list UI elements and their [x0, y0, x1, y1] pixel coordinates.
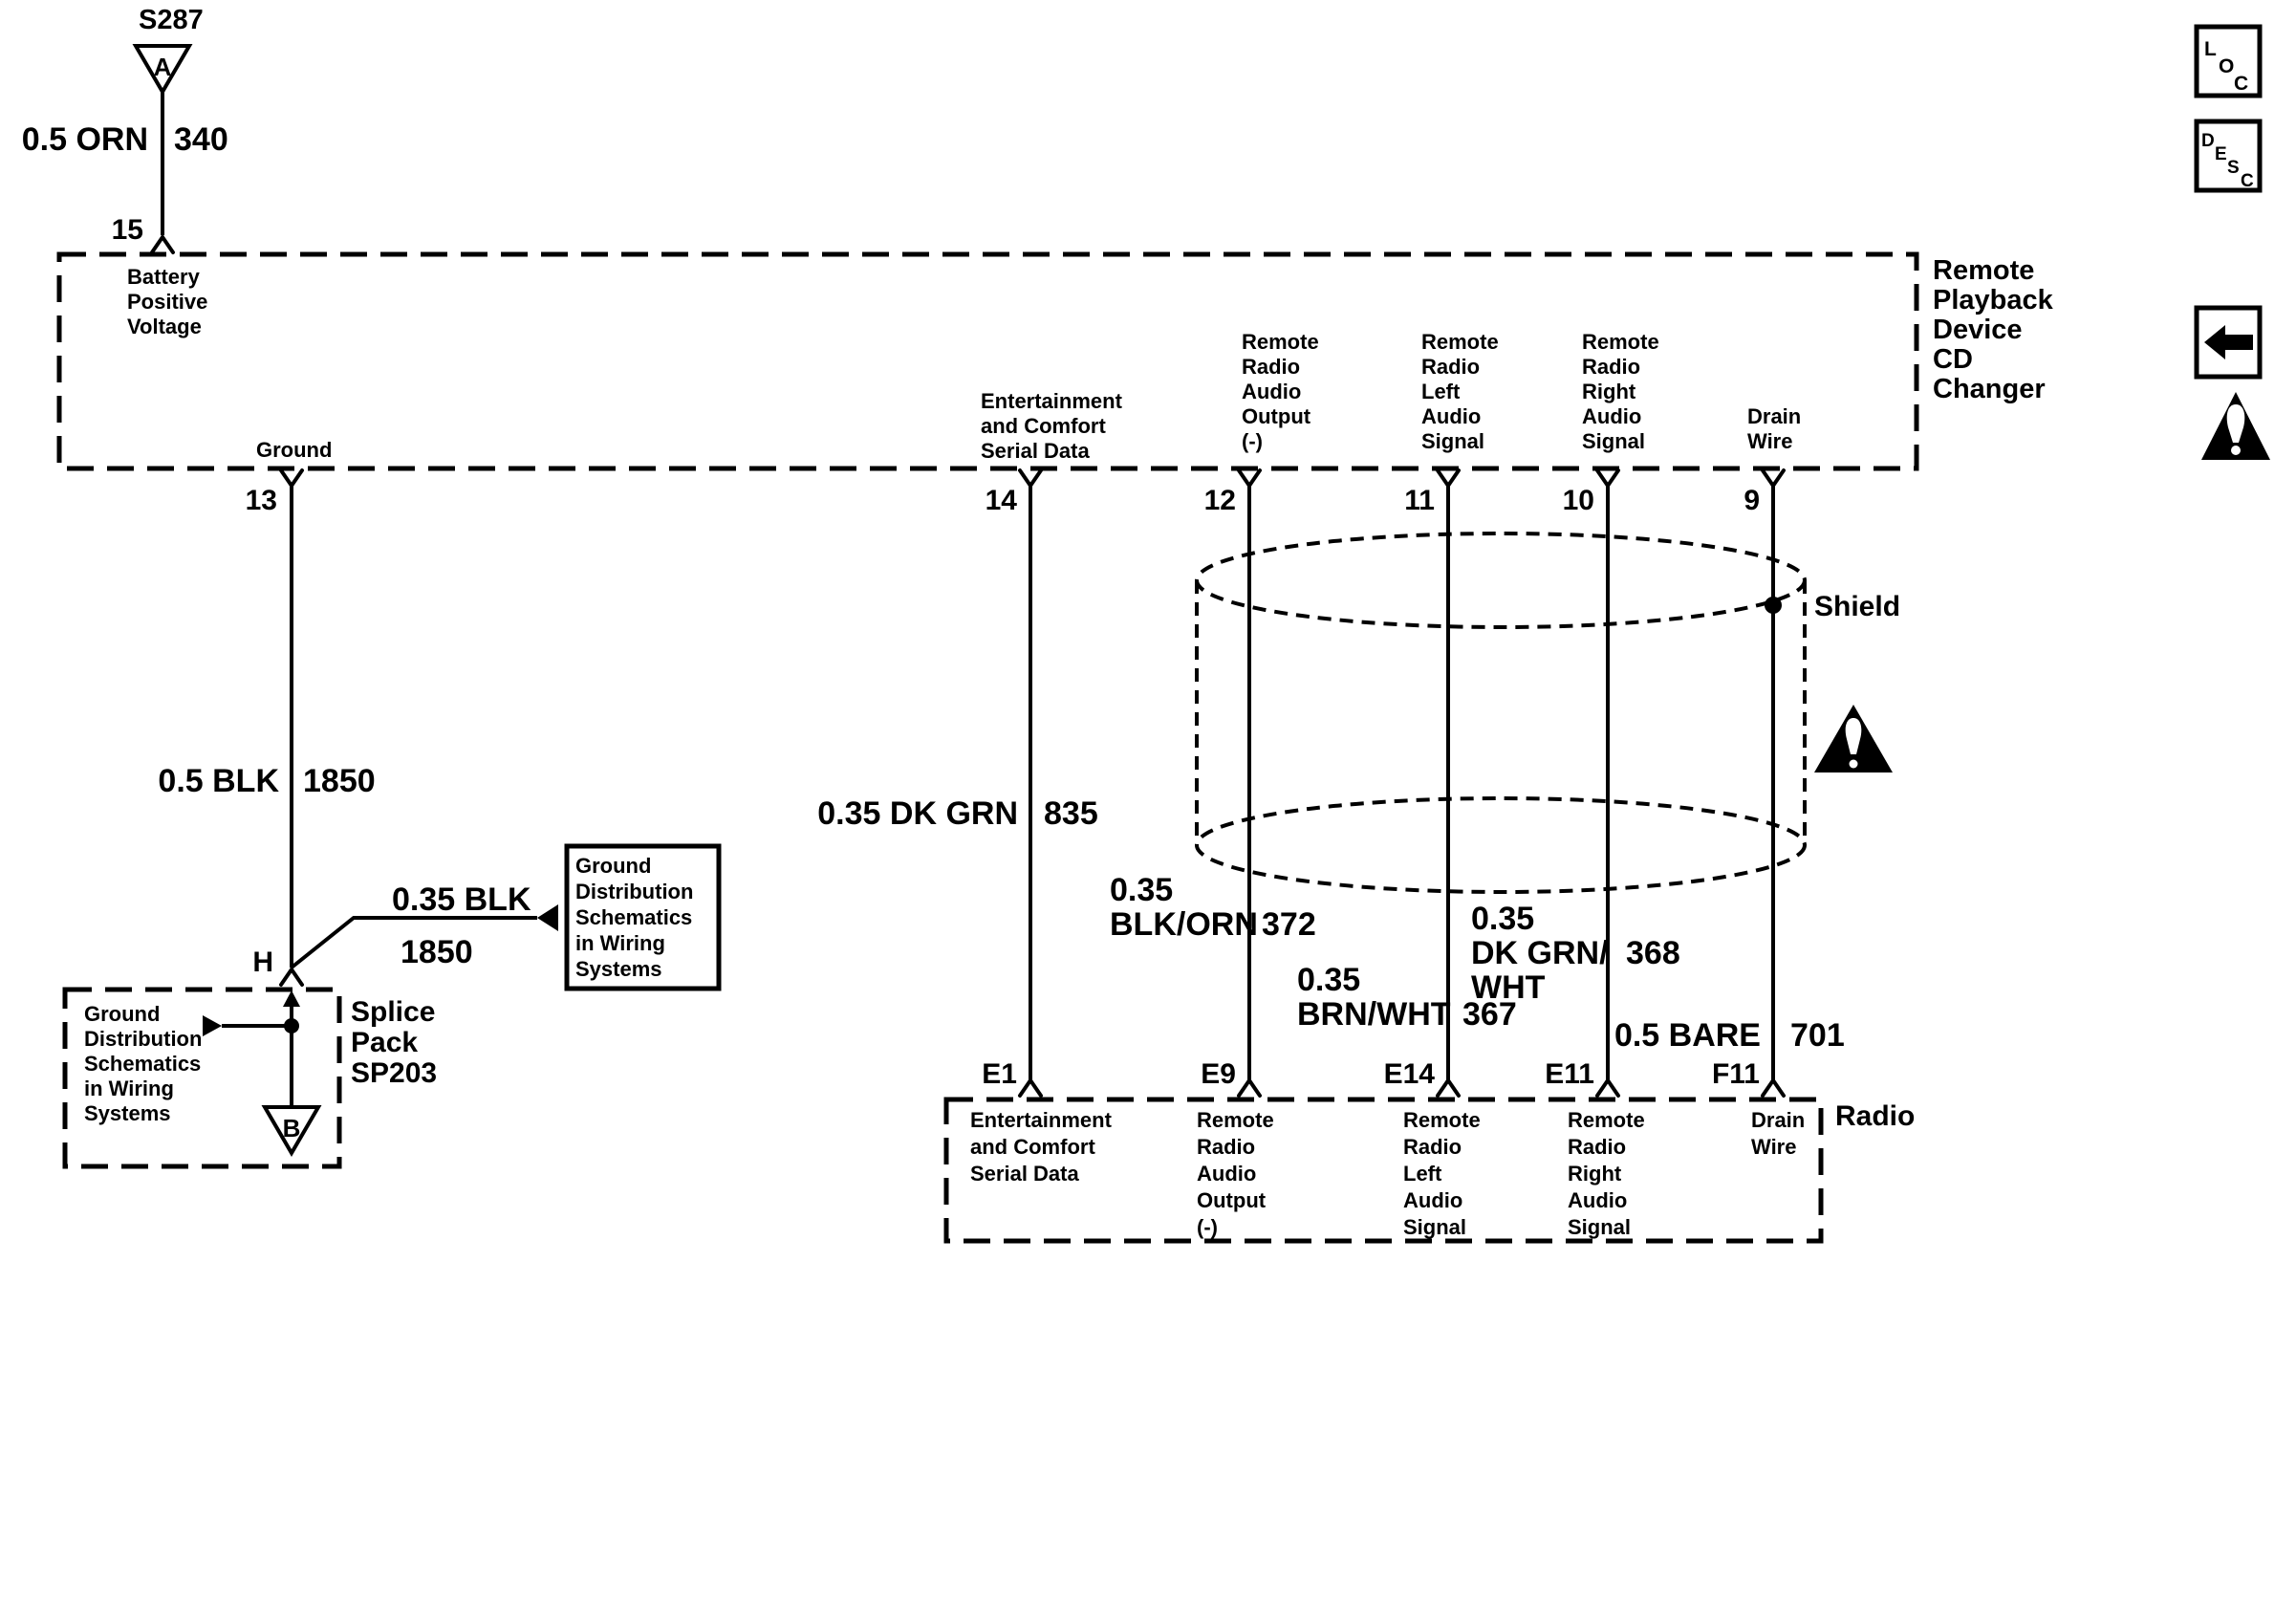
back-button[interactable]: [2197, 308, 2260, 377]
radio-right-audio-line1: Remote: [1568, 1108, 1645, 1132]
pin14-connector-icon: [1020, 470, 1041, 486]
loc-letter-l: L: [2204, 38, 2217, 60]
branch-wire-circuit: 1850: [401, 934, 473, 970]
radio-left-audio-line3: Left: [1403, 1162, 1442, 1186]
radio-audio-out-line3: Audio: [1197, 1162, 1256, 1186]
ground-wire-color: 0.5 BLK: [158, 763, 279, 799]
pin10-number: 10: [1563, 485, 1594, 516]
splice-pack-area: H Splice Pack SP203 Ground Distribution …: [84, 946, 437, 1125]
battery-wire-color-label: 0.5 ORN: [22, 121, 148, 158]
cd-serial-line3: Serial Data: [981, 439, 1090, 463]
serial-wire-color: 0.35 DK GRN: [817, 795, 1018, 832]
right-audio-wire-color-line1: 0.35: [1471, 901, 1534, 937]
radio-serial-line2: and Comfort: [970, 1135, 1095, 1159]
pin9-connector-icon: [1763, 470, 1784, 486]
desc-letter-e: E: [2215, 144, 2227, 164]
right-audio-wire-circuit: 368: [1626, 935, 1680, 971]
branch-to-schematic-arrow-icon: [537, 904, 558, 931]
cd-left-audio-line3: Left: [1421, 380, 1461, 403]
cd-name-line4: CD: [1933, 344, 1973, 375]
pinE14-connector-icon: [1438, 1080, 1459, 1096]
gnd-dist-line3: Schematics: [575, 905, 692, 929]
drain-wire-color: 0.5 BARE: [1614, 1017, 1761, 1054]
pinE9-number: E9: [1201, 1058, 1236, 1090]
pinE9-connector-icon: [1239, 1080, 1260, 1096]
pin13-number: 13: [246, 485, 277, 516]
warning-exclamation-dot: [2231, 446, 2241, 455]
splice-box-line2: Distribution: [84, 1027, 202, 1051]
battery-positive-line1: Battery: [127, 265, 201, 289]
radio-audio-out-line4: Output: [1197, 1188, 1267, 1212]
radio-left-audio-line4: Audio: [1403, 1188, 1462, 1212]
pinH-connector-icon: [281, 969, 302, 985]
pin13-connector-icon: [281, 470, 302, 486]
audio-out-wire-circuit: 372: [1262, 906, 1316, 943]
wiring-diagram-page: A B S287 0.5 ORN 340 15 Battery Positive…: [0, 0, 2296, 1610]
radio-serial-line3: Serial Data: [970, 1162, 1079, 1186]
pin11-connector-icon: [1438, 470, 1459, 486]
cd-right-audio-line3: Right: [1582, 380, 1636, 403]
wiring-diagram-canvas: A B S287 0.5 ORN 340 15 Battery Positive…: [0, 0, 2296, 1610]
cd-name-line1: Remote: [1933, 255, 2034, 286]
radio-left-audio-line5: Signal: [1403, 1215, 1466, 1239]
gnd-dist-line5: Systems: [575, 957, 662, 981]
shield-bottom-ellipse: [1197, 798, 1805, 892]
caution-indicator[interactable]: [2201, 392, 2270, 460]
pinE14-number: E14: [1384, 1058, 1436, 1090]
cd-audio-out-line3: Audio: [1242, 380, 1301, 403]
gnd-dist-line4: in Wiring: [575, 931, 665, 955]
shield-cylinder: [1197, 533, 1805, 892]
radio-name: Radio: [1835, 1100, 1915, 1132]
cd-left-audio-line2: Radio: [1421, 355, 1480, 379]
corner-toolbar: L O C D E S C: [2197, 27, 2270, 460]
connector-a-letter: A: [154, 53, 172, 81]
cd-serial-line1: Entertainment: [981, 389, 1123, 413]
splice-pack-line3: SP203: [351, 1057, 437, 1089]
pinE11-connector-icon: [1597, 1080, 1618, 1096]
splice-box-line5: Systems: [84, 1101, 171, 1125]
cd-left-audio-line5: Signal: [1421, 429, 1484, 453]
cd-right-audio-line4: Audio: [1582, 404, 1641, 428]
pin11-number: 11: [1404, 485, 1435, 516]
shield-label: Shield: [1814, 591, 1900, 622]
right-audio-wire-color-line2: DK GRN/: [1471, 935, 1609, 971]
pin12-number: 12: [1204, 485, 1236, 516]
warning-exclamation-dot: [1850, 760, 1858, 769]
loc-letter-o: O: [2219, 55, 2234, 77]
ground-wire-circuit: 1850: [303, 763, 376, 799]
splice-male-terminal-icon: [283, 990, 300, 1007]
right-audio-wire-color-line3: WHT: [1471, 969, 1546, 1006]
cd-serial-line2: and Comfort: [981, 414, 1106, 438]
connector-b-letter: B: [283, 1114, 301, 1142]
cd-audio-out-line1: Remote: [1242, 330, 1319, 354]
cd-name-line5: Changer: [1933, 374, 2046, 404]
splice-box-line4: in Wiring: [84, 1077, 174, 1100]
gnd-dist-line2: Distribution: [575, 880, 693, 903]
cd-audio-out-line5: (-): [1242, 429, 1263, 453]
pinF11-number: F11: [1712, 1058, 1760, 1090]
splice-box-line3: Schematics: [84, 1052, 201, 1076]
radio-left-audio-line2: Radio: [1403, 1135, 1462, 1159]
pin15-connector-icon: [152, 237, 173, 252]
radio-right-audio-line3: Right: [1568, 1162, 1622, 1186]
radio-audio-out-line2: Radio: [1197, 1135, 1255, 1159]
left-audio-wire-color-line2: BRN/WHT: [1297, 996, 1451, 1033]
cd-name-line2: Playback: [1933, 285, 2054, 315]
desc-button[interactable]: D E S C: [2197, 121, 2260, 191]
pin14-number: 14: [986, 485, 1018, 516]
cd-left-audio-line1: Remote: [1421, 330, 1499, 354]
splice-pack-line1: Splice: [351, 996, 435, 1028]
radio-drain-line2: Wire: [1751, 1135, 1796, 1159]
radio-drain-line1: Drain: [1751, 1108, 1805, 1132]
cd-name-line3: Device: [1933, 315, 2023, 345]
pinE11-number: E11: [1545, 1058, 1594, 1090]
splice-junction-dot: [284, 1018, 299, 1033]
cd-right-audio-line2: Radio: [1582, 355, 1640, 379]
pinE1-number: E1: [982, 1058, 1017, 1090]
battery-positive-line3: Voltage: [127, 315, 202, 338]
battery-wire-circuit-label: 340: [174, 121, 228, 158]
pin15-number: 15: [112, 214, 143, 246]
splice-pack-line2: Pack: [351, 1027, 418, 1058]
desc-letter-d: D: [2201, 131, 2215, 151]
pinH-number: H: [252, 946, 273, 978]
cd-changer-labels: Battery Positive Voltage Ground Entertai…: [127, 265, 1801, 463]
desc-letter-s: S: [2227, 158, 2240, 178]
cd-changer-pin-numbers: 13 14 12 11 10 9: [246, 485, 1760, 516]
splice-schematic-arrow-icon: [203, 1015, 222, 1036]
radio-serial-line1: Entertainment: [970, 1108, 1113, 1132]
cd-audio-out-line4: Output: [1242, 404, 1311, 428]
cd-right-audio-line1: Remote: [1582, 330, 1659, 354]
cd-left-audio-line4: Audio: [1421, 404, 1481, 428]
radio-audio-out-line1: Remote: [1197, 1108, 1274, 1132]
shield-warning-icon: [1814, 705, 1893, 772]
battery-positive-line2: Positive: [127, 290, 207, 314]
pinF11-connector-icon: [1763, 1080, 1784, 1096]
gnd-dist-line1: Ground: [575, 854, 651, 878]
cd-drain-line1: Drain: [1747, 404, 1801, 428]
pin12-connector-icon: [1239, 470, 1260, 486]
pin10-connector-icon: [1597, 470, 1618, 486]
radio-right-audio-line4: Audio: [1568, 1188, 1627, 1212]
loc-letter-c: C: [2234, 73, 2248, 95]
drain-wire-circuit: 701: [1790, 1017, 1845, 1054]
radio-audio-out-line5: (-): [1197, 1215, 1218, 1239]
splice-s287-label: S287: [139, 5, 204, 35]
audio-out-wire-color-line2: BLK/ORN: [1110, 906, 1258, 943]
radio-left-audio-line1: Remote: [1403, 1108, 1481, 1132]
pin9-number: 9: [1744, 485, 1760, 516]
radio-right-audio-line2: Radio: [1568, 1135, 1626, 1159]
radio-pin-numbers: E1 E9 E14 E11 F11: [982, 1058, 1760, 1090]
cd-audio-out-line2: Radio: [1242, 355, 1300, 379]
shield-top-ellipse: [1197, 533, 1805, 627]
left-audio-wire-color-line1: 0.35: [1297, 962, 1360, 998]
cd-ground-label: Ground: [256, 438, 332, 462]
ground-distribution-reference: Ground Distribution Schematics in Wiring…: [575, 854, 693, 981]
splice-box-line1: Ground: [84, 1002, 160, 1026]
cd-right-audio-line5: Signal: [1582, 429, 1645, 453]
radio-right-audio-line5: Signal: [1568, 1215, 1631, 1239]
serial-wire-circuit: 835: [1044, 795, 1098, 832]
shield-junction-dot: [1765, 597, 1782, 614]
pinE1-connector-icon: [1020, 1080, 1041, 1096]
radio-labels: Entertainment and Comfort Serial Data Re…: [970, 1108, 1805, 1239]
cd-drain-line2: Wire: [1747, 429, 1792, 453]
loc-button[interactable]: L O C: [2197, 27, 2260, 96]
branch-wire-color: 0.35 BLK: [392, 881, 531, 918]
audio-out-wire-color-line1: 0.35: [1110, 872, 1173, 908]
cd-changer-name: Remote Playback Device CD Changer: [1933, 255, 2054, 404]
desc-letter-c: C: [2241, 171, 2254, 191]
